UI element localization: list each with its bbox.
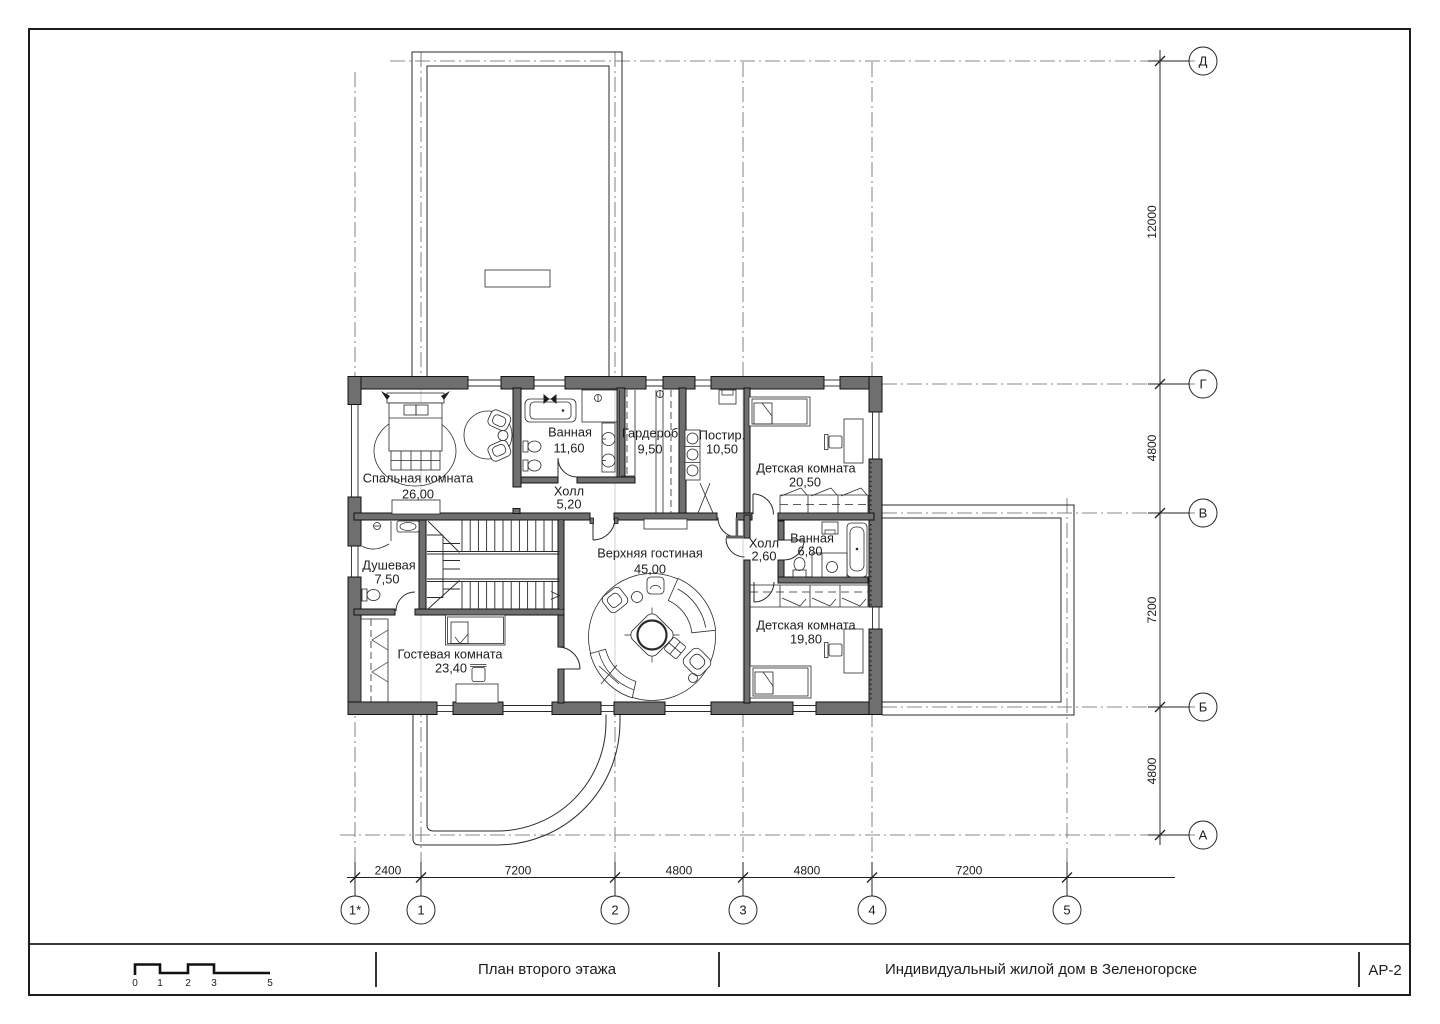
svg-text:7,50: 7,50 [375, 572, 400, 587]
svg-text:3: 3 [211, 978, 217, 989]
svg-text:11,60: 11,60 [553, 441, 584, 456]
svg-text:26,00: 26,00 [402, 487, 434, 502]
svg-text:19,80: 19,80 [790, 632, 822, 647]
svg-text:9,50: 9,50 [638, 442, 663, 457]
svg-text:4800: 4800 [666, 864, 693, 878]
svg-text:1: 1 [417, 903, 424, 918]
svg-text:Гостевая комната: Гостевая комната [397, 647, 503, 662]
svg-text:3: 3 [739, 903, 746, 918]
svg-text:Верхняя гостиная: Верхняя гостиная [597, 546, 703, 561]
svg-text:План второго этажа: План второго этажа [478, 961, 617, 978]
svg-text:2400: 2400 [375, 864, 402, 878]
svg-text:2: 2 [611, 903, 618, 918]
svg-text:Детская комната: Детская комната [756, 618, 856, 633]
svg-text:4800: 4800 [794, 864, 821, 878]
svg-text:10,50: 10,50 [706, 442, 738, 457]
svg-text:АР-2: АР-2 [1368, 962, 1401, 979]
svg-text:2: 2 [185, 978, 191, 989]
svg-text:Индивидуальный жилой дом в Зел: Индивидуальный жилой дом в Зеленогорске [885, 961, 1197, 978]
svg-text:Душевая: Душевая [362, 558, 416, 573]
svg-text:В: В [1199, 506, 1208, 521]
svg-text:7200: 7200 [505, 864, 532, 878]
svg-text:4800: 4800 [1145, 757, 1159, 784]
svg-text:1*: 1* [349, 903, 361, 918]
svg-text:45,00: 45,00 [634, 562, 666, 577]
svg-text:Гардероб: Гардероб [622, 426, 678, 441]
svg-text:Б: Б [1199, 700, 1208, 715]
svg-text:7200: 7200 [956, 864, 983, 878]
svg-text:23,40: 23,40 [435, 661, 467, 676]
svg-text:Ванная: Ванная [548, 425, 592, 440]
svg-text:0: 0 [132, 978, 138, 989]
svg-text:4: 4 [868, 903, 875, 918]
svg-text:Детская комната: Детская комната [756, 461, 856, 476]
svg-text:4800: 4800 [1145, 434, 1159, 461]
svg-text:1: 1 [157, 978, 163, 989]
svg-text:5: 5 [267, 978, 273, 989]
svg-text:5,20: 5,20 [557, 497, 582, 512]
svg-text:5: 5 [1063, 903, 1070, 918]
svg-text:Г: Г [1199, 377, 1206, 392]
svg-text:2,60: 2,60 [752, 549, 777, 564]
svg-text:А: А [1199, 828, 1208, 843]
svg-text:6,80: 6,80 [798, 544, 823, 559]
svg-text:Постир.: Постир. [699, 428, 745, 443]
svg-text:Спальная комната: Спальная комната [363, 471, 474, 486]
svg-text:12000: 12000 [1145, 205, 1159, 239]
svg-text:Д: Д [1199, 54, 1208, 69]
svg-text:7200: 7200 [1145, 596, 1159, 623]
svg-text:20,50: 20,50 [789, 475, 821, 490]
